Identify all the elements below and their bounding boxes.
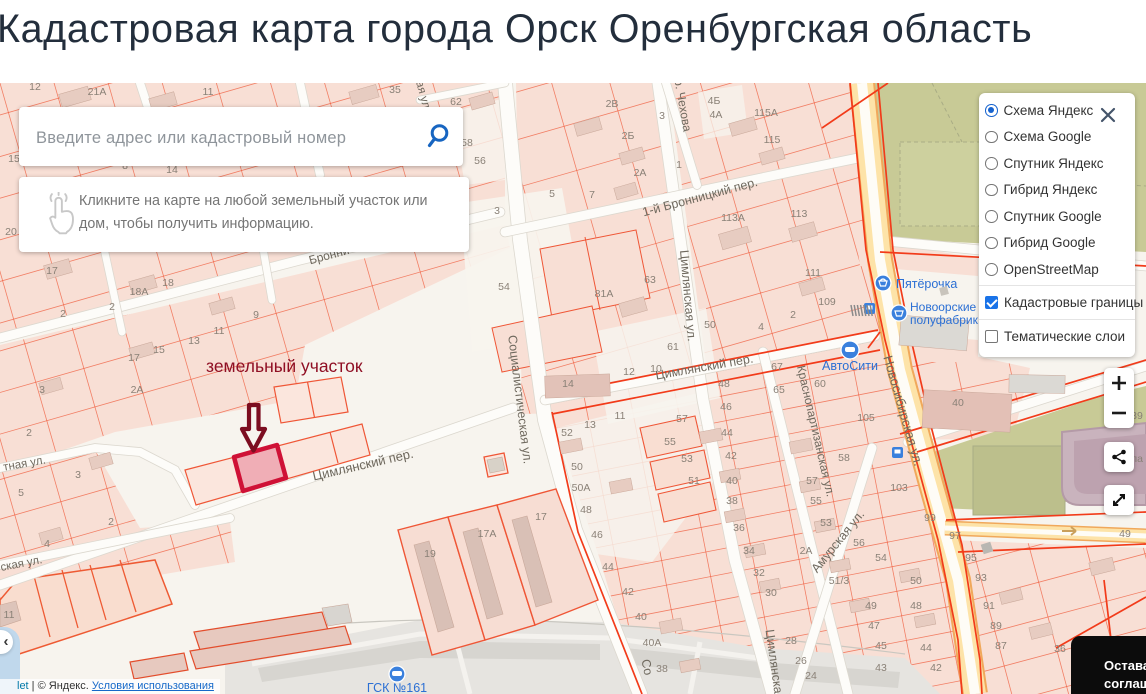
svg-text:91: 91 [983, 600, 995, 612]
svg-text:26: 26 [795, 655, 807, 667]
svg-text:61: 61 [667, 341, 679, 353]
svg-text:11: 11 [4, 609, 15, 621]
svg-text:65: 65 [773, 384, 785, 396]
svg-text:земельный участок: земельный участок [206, 356, 363, 376]
svg-text:48: 48 [580, 504, 592, 516]
svg-text:50А: 50А [572, 482, 591, 494]
svg-text:48: 48 [718, 378, 730, 390]
svg-text:36: 36 [733, 522, 745, 534]
svg-text:95: 95 [965, 552, 977, 564]
svg-text:7: 7 [589, 189, 595, 201]
svg-text:3: 3 [75, 469, 81, 481]
svg-text:115А: 115А [754, 107, 778, 119]
svg-text:9: 9 [253, 309, 259, 321]
svg-text:49: 49 [865, 600, 877, 612]
svg-text:24: 24 [805, 670, 817, 682]
svg-text:56: 56 [474, 155, 486, 167]
svg-text:4: 4 [758, 321, 764, 333]
svg-text:44: 44 [602, 561, 614, 573]
svg-text:99: 99 [924, 512, 936, 524]
svg-text:58: 58 [838, 452, 850, 464]
svg-text:30: 30 [765, 587, 777, 599]
svg-text:5: 5 [18, 487, 24, 499]
svg-text:47: 47 [868, 620, 880, 632]
svg-text:53: 53 [681, 453, 693, 465]
svg-text:60: 60 [814, 378, 826, 390]
svg-text:44: 44 [721, 427, 733, 439]
svg-text:52: 52 [561, 427, 573, 439]
svg-text:3: 3 [39, 384, 45, 396]
svg-text:36: 36 [1054, 643, 1066, 655]
svg-text:42: 42 [930, 662, 942, 674]
svg-text:56: 56 [853, 537, 865, 549]
svg-text:1: 1 [676, 159, 682, 171]
svg-text:17А: 17А [478, 528, 497, 540]
svg-text:46: 46 [591, 529, 603, 541]
svg-text:40: 40 [952, 397, 964, 409]
svg-text:51: 51 [688, 475, 700, 487]
svg-text:28: 28 [785, 635, 797, 647]
svg-text:81А: 81А [595, 288, 614, 300]
svg-text:4А: 4А [710, 109, 723, 121]
svg-text:48: 48 [910, 600, 922, 612]
svg-text:50: 50 [571, 461, 583, 473]
svg-text:19: 19 [424, 548, 436, 560]
svg-text:44: 44 [920, 642, 932, 654]
svg-text:109: 109 [818, 296, 836, 308]
svg-text:63: 63 [644, 274, 656, 286]
svg-text:38: 38 [656, 663, 668, 675]
svg-text:40: 40 [635, 611, 647, 623]
svg-text:57: 57 [806, 475, 818, 487]
svg-text:54: 54 [875, 552, 887, 564]
svg-text:34: 34 [743, 545, 755, 557]
svg-text:53: 53 [820, 517, 832, 529]
svg-text:15: 15 [153, 344, 165, 356]
svg-text:113: 113 [791, 208, 808, 220]
svg-text:Новоорские: Новоорские [910, 300, 977, 314]
svg-text:105: 105 [857, 412, 875, 424]
svg-text:13: 13 [188, 335, 200, 347]
svg-text:32: 32 [753, 567, 765, 579]
svg-text:2А: 2А [131, 384, 144, 396]
svg-text:45: 45 [875, 640, 887, 652]
svg-text:3: 3 [659, 110, 665, 122]
svg-text:50: 50 [910, 575, 922, 587]
svg-text:21А: 21А [88, 86, 107, 98]
svg-text:17: 17 [46, 265, 58, 277]
svg-text:20: 20 [5, 226, 17, 238]
svg-text:11: 11 [615, 410, 626, 422]
svg-text:4: 4 [44, 538, 50, 550]
svg-text:55: 55 [664, 436, 676, 448]
svg-text:40А: 40А [643, 637, 662, 649]
svg-text:35: 35 [389, 84, 401, 96]
svg-text:50: 50 [704, 319, 716, 331]
svg-text:51/3: 51/3 [829, 575, 850, 587]
svg-text:5: 5 [549, 188, 555, 200]
svg-text:13: 13 [584, 419, 596, 431]
svg-text:Пятёрочка: Пятёрочка [896, 277, 957, 291]
svg-text:2: 2 [108, 516, 114, 528]
svg-text:3: 3 [494, 205, 500, 217]
svg-text:93: 93 [975, 572, 987, 584]
svg-text:14: 14 [562, 378, 574, 390]
svg-text:113А: 113А [721, 212, 745, 224]
svg-text:полуфабрик: полуфабрик [910, 313, 979, 327]
svg-text:4Б: 4Б [708, 95, 721, 107]
svg-text:12: 12 [623, 366, 635, 378]
svg-text:42: 42 [725, 450, 737, 462]
svg-text:55: 55 [810, 495, 822, 507]
svg-text:ГСК №161: ГСК №161 [367, 681, 427, 694]
svg-text:11: 11 [214, 325, 225, 337]
svg-text:42: 42 [622, 586, 634, 598]
svg-text:38: 38 [726, 495, 738, 507]
svg-text:2Б: 2Б [622, 130, 635, 142]
svg-text:103: 103 [890, 482, 908, 494]
svg-text:18: 18 [162, 277, 174, 289]
svg-text:18А: 18А [130, 286, 149, 298]
svg-text:2А: 2А [634, 167, 647, 179]
svg-text:10: 10 [650, 363, 662, 375]
svg-text:54: 54 [498, 281, 510, 293]
svg-text:11: 11 [203, 86, 214, 98]
svg-text:57: 57 [676, 413, 688, 425]
svg-text:АвтоСити: АвтоСити [822, 359, 878, 373]
svg-text:17: 17 [128, 352, 140, 364]
svg-text:89: 89 [990, 620, 1002, 632]
svg-text:17: 17 [535, 511, 547, 523]
svg-text:2А: 2А [800, 545, 813, 557]
svg-text:43: 43 [875, 662, 887, 674]
svg-text:87: 87 [995, 640, 1007, 652]
svg-text:111: 111 [805, 267, 821, 279]
svg-text:2: 2 [790, 309, 796, 321]
svg-text:12: 12 [29, 83, 41, 93]
svg-text:49: 49 [1119, 528, 1131, 540]
svg-text:40: 40 [726, 475, 738, 487]
svg-text:97: 97 [949, 530, 961, 542]
svg-text:46: 46 [720, 401, 732, 413]
svg-text:2: 2 [26, 427, 32, 439]
svg-text:2В: 2В [606, 98, 619, 110]
svg-text:115: 115 [764, 134, 781, 146]
svg-text:67: 67 [771, 361, 783, 373]
svg-text:2: 2 [60, 308, 66, 320]
svg-text:2: 2 [109, 301, 115, 313]
